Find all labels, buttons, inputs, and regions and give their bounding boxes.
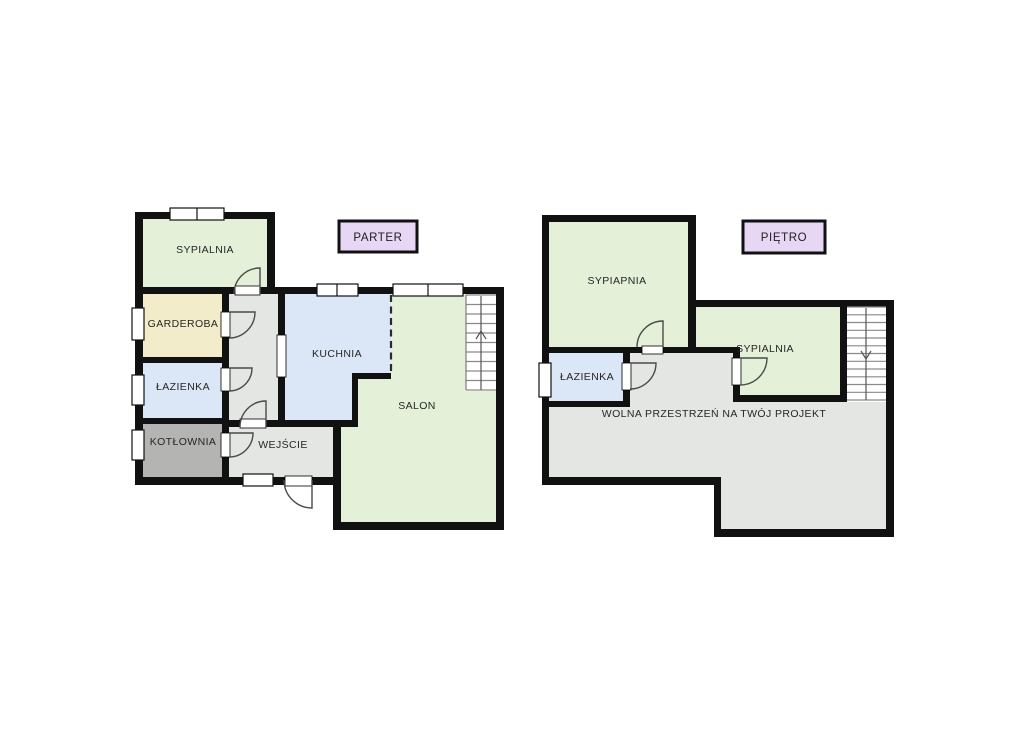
room-label-wejscie: WEJŚCIE (258, 438, 307, 451)
room-label-sypialnia: SYPIALNIA (176, 244, 234, 256)
windows-pietro (539, 363, 551, 397)
room-sypialnia-2 (737, 352, 844, 399)
kitchen-doorway (277, 335, 286, 377)
room-label-kotlownia: KOTŁOWNIA (150, 436, 217, 448)
room-kotlownia (139, 421, 227, 481)
room-label-open-space: WOLNA PRZESTRZEŃ NA TWÓJ PROJEKT (602, 407, 827, 420)
room-salon (337, 424, 367, 526)
floor-plan-drawing: SYPIALNIA GARDEROBA ŁAZIENKA KOTŁOWNIA K… (0, 0, 1024, 750)
room-label-sypiapnia: SYPIAPNIA (587, 275, 646, 287)
entrance-doorway (285, 476, 312, 486)
room-label-garderoba: GARDEROBA (148, 318, 219, 330)
floor-title-pietro: PIĘTRO (761, 232, 807, 244)
room-kuchnia (355, 294, 391, 376)
floor-pietro: SYPIAPNIA ŁAZIENKA SYPIALNIA WOLNA PRZES… (539, 215, 894, 537)
floor-title-parter: PARTER (353, 232, 402, 244)
room-label-lazienka-2: ŁAZIENKA (560, 371, 614, 383)
room-label-lazienka: ŁAZIENKA (156, 381, 210, 393)
room-label-salon: SALON (398, 400, 436, 412)
room-label-kuchnia: KUCHNIA (312, 348, 362, 360)
floor-plan-canvas: SYPIALNIA GARDEROBA ŁAZIENKA KOTŁOWNIA K… (0, 0, 1024, 750)
open-space-floor (718, 481, 890, 533)
floor-parter: SYPIALNIA GARDEROBA ŁAZIENKA KOTŁOWNIA K… (132, 208, 504, 530)
room-label-sypialnia-2: SYPIALNIA (736, 343, 794, 355)
